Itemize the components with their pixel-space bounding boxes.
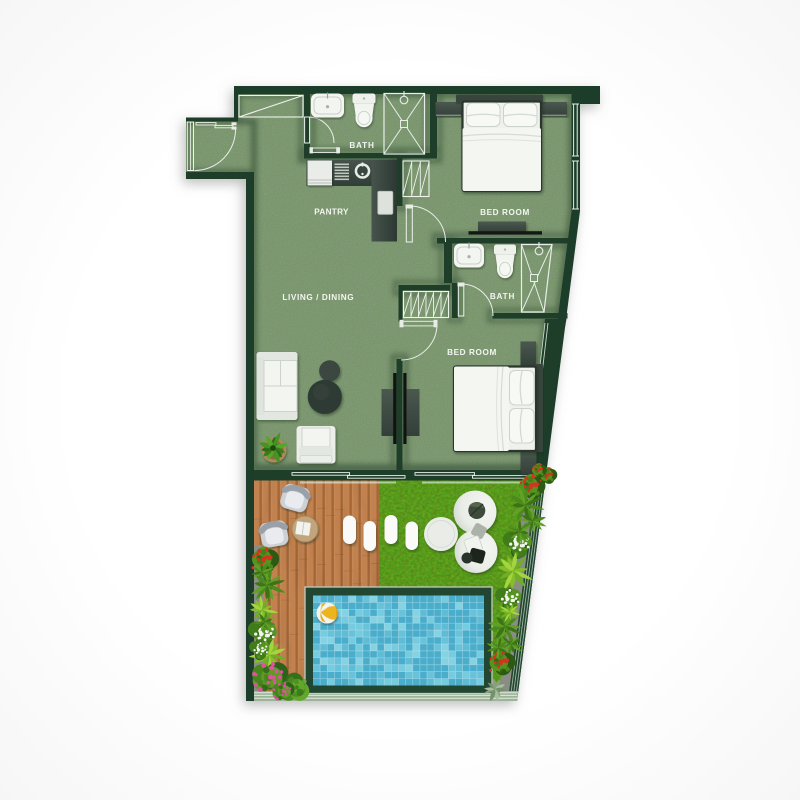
svg-text:PANTRY: PANTRY (314, 208, 349, 217)
svg-text:BATH: BATH (349, 141, 374, 150)
svg-text:BATH: BATH (490, 292, 515, 301)
svg-text:BED ROOM: BED ROOM (480, 208, 530, 217)
svg-text:LIVING / DINING: LIVING / DINING (282, 293, 354, 302)
svg-text:BED ROOM: BED ROOM (447, 348, 497, 357)
